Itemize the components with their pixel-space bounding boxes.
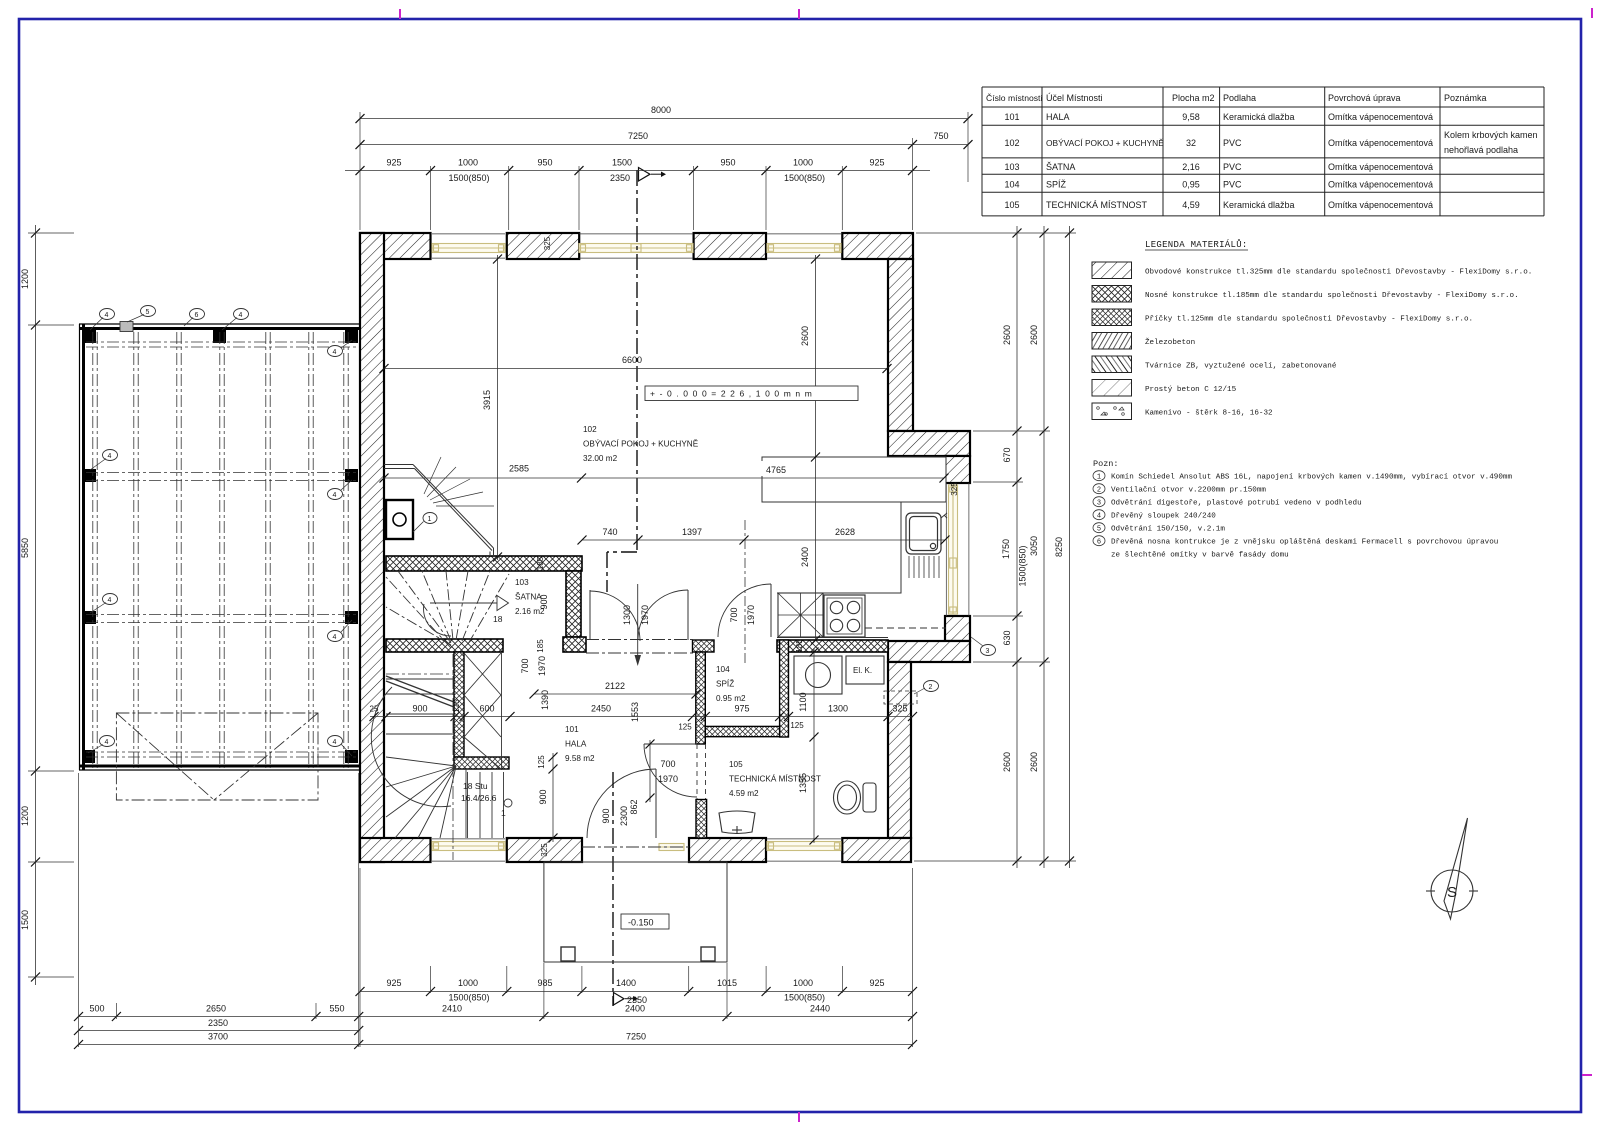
svg-text:3050: 3050 <box>1029 536 1039 556</box>
svg-text:862: 862 <box>629 799 639 814</box>
svg-text:2400: 2400 <box>800 547 810 567</box>
svg-text:4: 4 <box>105 739 109 746</box>
svg-text:2350: 2350 <box>610 173 630 183</box>
svg-text:4: 4 <box>105 312 109 319</box>
svg-text:630: 630 <box>1002 630 1012 645</box>
svg-text:104: 104 <box>1004 180 1019 190</box>
svg-text:105: 105 <box>1004 200 1019 210</box>
svg-text:105: 105 <box>729 760 743 769</box>
svg-text:nehořlavá podlaha: nehořlavá podlaha <box>1444 145 1518 155</box>
svg-text:1553: 1553 <box>630 702 640 722</box>
svg-text:1: 1 <box>1097 473 1101 481</box>
svg-text:16.4/26.6: 16.4/26.6 <box>461 793 497 803</box>
svg-text:125: 125 <box>790 721 804 730</box>
svg-text:1300: 1300 <box>622 605 632 625</box>
svg-text:3: 3 <box>986 648 990 655</box>
svg-text:4,59: 4,59 <box>1182 200 1200 210</box>
svg-text:925: 925 <box>386 158 401 168</box>
svg-text:1970: 1970 <box>746 605 756 625</box>
svg-text:Omítka vápenocementová: Omítka vápenocementová <box>1328 162 1433 172</box>
svg-text:925: 925 <box>869 158 884 168</box>
svg-text:5: 5 <box>1097 525 1101 533</box>
svg-text:900: 900 <box>601 808 611 823</box>
svg-text:Omítka vápenocementová: Omítka vápenocementová <box>1328 112 1433 122</box>
svg-text:TECHNICKÁ MÍSTNOST: TECHNICKÁ MÍSTNOST <box>1046 200 1148 210</box>
svg-text:Odvětrání digestoře, plastové: Odvětrání digestoře, plastové potrubí ve… <box>1111 500 1362 508</box>
svg-text:900: 900 <box>412 704 427 714</box>
svg-text:ze šlechtěné omítky v barvě fa: ze šlechtěné omítky v barvě fasády domu <box>1111 552 1289 560</box>
svg-text:4: 4 <box>333 739 337 746</box>
svg-text:SPÍŽ: SPÍŽ <box>716 679 734 689</box>
svg-text:3915: 3915 <box>482 390 492 410</box>
svg-text:PVC: PVC <box>1223 180 1242 190</box>
svg-text:9.58 m2: 9.58 m2 <box>565 754 595 763</box>
svg-text:PVC: PVC <box>1223 162 1242 172</box>
svg-text:103: 103 <box>1004 162 1019 172</box>
svg-text:185: 185 <box>536 639 545 653</box>
svg-text:SPÍŽ: SPÍŽ <box>1046 180 1067 190</box>
svg-text:Podlaha: Podlaha <box>1223 93 1256 103</box>
svg-text:1000: 1000 <box>458 978 478 988</box>
svg-text:2,16: 2,16 <box>1182 162 1200 172</box>
svg-text:Omítka vápenocementová: Omítka vápenocementová <box>1328 138 1433 148</box>
svg-text:1970: 1970 <box>658 774 678 784</box>
svg-text:Komín Schiedel Ansolut ABS 16L: Komín Schiedel Ansolut ABS 16L, napojení… <box>1111 474 1512 482</box>
svg-text:1970: 1970 <box>640 605 650 625</box>
svg-text:670: 670 <box>1002 447 1012 462</box>
svg-text:4: 4 <box>333 634 337 641</box>
svg-text:1500: 1500 <box>20 910 30 930</box>
svg-text:950: 950 <box>720 158 735 168</box>
svg-text:Plocha m2: Plocha m2 <box>1172 93 1215 103</box>
svg-text:325: 325 <box>892 704 907 714</box>
svg-text:HALA: HALA <box>1046 112 1070 122</box>
svg-text:Číslo místnosti: Číslo místnosti <box>986 93 1042 103</box>
svg-text:6: 6 <box>195 312 199 319</box>
svg-text:325: 325 <box>543 236 552 250</box>
svg-text:2: 2 <box>929 684 933 691</box>
svg-text:2600: 2600 <box>1002 325 1012 345</box>
svg-text:2440: 2440 <box>810 1004 830 1014</box>
svg-text:Omítka vápenocementová: Omítka vápenocementová <box>1328 180 1433 190</box>
svg-text:Dřevěný sloupek 240/240: Dřevěný sloupek 240/240 <box>1111 513 1216 521</box>
svg-text:925: 925 <box>386 978 401 988</box>
svg-text:325: 325 <box>950 482 959 496</box>
svg-text:4: 4 <box>333 492 337 499</box>
svg-text:Železobeton: Železobeton <box>1145 338 1195 347</box>
svg-text:Kamenivo - štěrk 8-16, 16-32: Kamenivo - štěrk 8-16, 16-32 <box>1145 410 1273 418</box>
svg-text:1100: 1100 <box>798 692 808 711</box>
svg-text:Omítka vápenocementová: Omítka vápenocementová <box>1328 200 1433 210</box>
svg-text:OBÝVACÍ POKOJ + KUCHYNĚ: OBÝVACÍ POKOJ + KUCHYNĚ <box>583 439 699 449</box>
svg-text:1000: 1000 <box>793 158 813 168</box>
svg-text:Nosné konstrukce tl.185mm dle: Nosné konstrukce tl.185mm dle standardu … <box>1145 292 1519 300</box>
svg-text:1: 1 <box>501 808 506 818</box>
svg-text:1500(850): 1500(850) <box>784 173 825 183</box>
svg-text:700: 700 <box>729 607 739 622</box>
svg-text:4: 4 <box>239 312 243 319</box>
svg-text:2650: 2650 <box>206 1004 226 1014</box>
svg-text:Pozn:: Pozn: <box>1093 459 1119 469</box>
svg-text:1000: 1000 <box>458 158 478 168</box>
svg-text:985: 985 <box>537 978 552 988</box>
svg-text:5850: 5850 <box>20 538 30 558</box>
svg-text:Keramická dlažba: Keramická dlažba <box>1223 112 1295 122</box>
svg-text:1397: 1397 <box>682 527 702 537</box>
svg-text:8250: 8250 <box>1054 537 1064 557</box>
svg-text:+-0.000=226,100mnm: +-0.000=226,100mnm <box>650 389 816 399</box>
svg-text:Odvětrání 150/150, v.2.1m: Odvětrání 150/150, v.2.1m <box>1111 526 1225 534</box>
svg-text:HALA: HALA <box>565 740 587 749</box>
svg-text:125: 125 <box>452 699 461 713</box>
svg-text:Dřevěná nosna kontrukce je z v: Dřevěná nosna kontrukce je z vnějsku opl… <box>1111 539 1498 547</box>
svg-text:Povrchová úprava: Povrchová úprava <box>1328 93 1401 103</box>
svg-text:ŠATNA: ŠATNA <box>515 592 542 602</box>
svg-text:1200: 1200 <box>20 806 30 826</box>
svg-text:1500: 1500 <box>612 158 632 168</box>
svg-text:ŠATNA: ŠATNA <box>1046 162 1075 172</box>
svg-text:Keramická dlažba: Keramická dlažba <box>1223 200 1295 210</box>
svg-text:2600: 2600 <box>800 326 810 346</box>
svg-text:2600: 2600 <box>1029 325 1039 345</box>
svg-text:0.95 m2: 0.95 m2 <box>716 694 746 703</box>
svg-text:1500(850): 1500(850) <box>1018 545 1028 586</box>
svg-text:1750: 1750 <box>1001 539 1011 559</box>
svg-text:Tvárnice ZB, vyztužené ocelí,: Tvárnice ZB, vyztužené ocelí, zabetonova… <box>1145 363 1337 371</box>
svg-text:TECHNICKÁ MÍSTNOST: TECHNICKÁ MÍSTNOST <box>729 774 821 784</box>
svg-text:500: 500 <box>89 1004 104 1014</box>
svg-text:600: 600 <box>479 704 494 714</box>
svg-text:2.16 m2: 2.16 m2 <box>515 607 545 616</box>
svg-text:550: 550 <box>329 1004 344 1014</box>
svg-text:103: 103 <box>515 578 529 587</box>
svg-text:2450: 2450 <box>591 704 611 714</box>
svg-text:325: 325 <box>540 843 549 857</box>
svg-text:185: 185 <box>536 556 545 570</box>
svg-text:2600: 2600 <box>1029 752 1039 772</box>
svg-text:Účel Místnosti: Účel Místnosti <box>1046 93 1103 103</box>
svg-text:25: 25 <box>370 705 379 714</box>
svg-text:102: 102 <box>583 425 597 434</box>
svg-text:-0.150: -0.150 <box>628 918 654 928</box>
svg-text:1200: 1200 <box>20 269 30 289</box>
svg-text:4.59 m2: 4.59 m2 <box>729 789 759 798</box>
svg-text:OBÝVACÍ POKOJ + KUCHYNĚ: OBÝVACÍ POKOJ + KUCHYNĚ <box>1046 138 1164 148</box>
svg-text:2585: 2585 <box>509 464 529 474</box>
svg-text:2628: 2628 <box>835 527 855 537</box>
svg-text:1: 1 <box>428 516 432 523</box>
svg-text:101: 101 <box>1004 112 1019 122</box>
svg-text:4: 4 <box>1097 512 1101 520</box>
svg-text:950: 950 <box>537 158 552 168</box>
svg-text:Kolem krbových kamen: Kolem krbových kamen <box>1444 130 1538 140</box>
svg-text:4: 4 <box>333 349 337 356</box>
svg-text:9,58: 9,58 <box>1182 112 1200 122</box>
svg-text:0,95: 0,95 <box>1182 180 1200 190</box>
svg-text:Prostý beton C 12/15: Prostý beton C 12/15 <box>1145 386 1237 394</box>
svg-text:32: 32 <box>1186 138 1196 148</box>
svg-text:18: 18 <box>493 614 503 624</box>
svg-text:1000: 1000 <box>793 978 813 988</box>
svg-text:2300: 2300 <box>619 806 629 826</box>
svg-text:Poznámka: Poznámka <box>1444 93 1487 103</box>
svg-text:6600: 6600 <box>622 355 642 365</box>
svg-text:7250: 7250 <box>628 131 648 141</box>
svg-text:1400: 1400 <box>616 978 636 988</box>
svg-text:185: 185 <box>795 639 804 653</box>
svg-text:101: 101 <box>565 725 579 734</box>
svg-text:4: 4 <box>108 453 112 460</box>
svg-text:102: 102 <box>1004 138 1019 148</box>
svg-text:2600: 2600 <box>1002 752 1012 772</box>
svg-text:125: 125 <box>537 755 546 769</box>
svg-text:18 Stu: 18 Stu <box>463 781 488 791</box>
svg-text:1500(850): 1500(850) <box>784 993 825 1003</box>
svg-text:2410: 2410 <box>442 1004 462 1014</box>
svg-text:1500(850): 1500(850) <box>448 173 489 183</box>
svg-text:1500(850): 1500(850) <box>448 993 489 1003</box>
svg-text:3700: 3700 <box>208 1032 228 1042</box>
svg-text:Ventilační otvor v.2200mm pr.1: Ventilační otvor v.2200mm pr.150mm <box>1111 487 1266 495</box>
svg-text:El. K.: El. K. <box>853 666 872 675</box>
svg-text:125: 125 <box>678 723 692 732</box>
svg-text:32.00 m2: 32.00 m2 <box>583 454 618 463</box>
svg-text:700: 700 <box>520 658 530 673</box>
svg-text:104: 104 <box>716 665 730 674</box>
svg-text:2350: 2350 <box>208 1018 228 1028</box>
svg-text:6: 6 <box>1097 538 1101 546</box>
svg-text:Obvodové konstrukce tl.325mm d: Obvodové konstrukce tl.325mm dle standar… <box>1145 269 1532 277</box>
svg-text:LEGENDA MATERIÁLŮ:: LEGENDA MATERIÁLŮ: <box>1145 239 1248 250</box>
svg-text:8000: 8000 <box>651 105 671 115</box>
svg-text:3: 3 <box>1097 499 1101 507</box>
svg-text:7250: 7250 <box>626 1032 646 1042</box>
svg-text:1390: 1390 <box>540 690 550 710</box>
svg-text:900: 900 <box>538 789 548 804</box>
svg-text:1970: 1970 <box>537 656 547 676</box>
svg-text:2122: 2122 <box>605 681 625 691</box>
svg-text:Příčky tl.125mm dle standardu: Příčky tl.125mm dle standardu společnost… <box>1145 316 1473 324</box>
svg-text:PVC: PVC <box>1223 138 1242 148</box>
svg-text:4: 4 <box>108 597 112 604</box>
svg-text:5: 5 <box>146 309 150 316</box>
svg-text:700: 700 <box>660 759 675 769</box>
svg-text:2400: 2400 <box>625 1004 645 1014</box>
svg-text:S: S <box>1447 884 1457 901</box>
svg-text:740: 740 <box>602 527 617 537</box>
svg-text:750: 750 <box>933 131 948 141</box>
svg-text:925: 925 <box>869 978 884 988</box>
svg-text:1300: 1300 <box>828 704 848 714</box>
svg-text:975: 975 <box>734 704 749 714</box>
svg-text:4765: 4765 <box>766 465 786 475</box>
svg-text:2: 2 <box>1097 486 1101 494</box>
